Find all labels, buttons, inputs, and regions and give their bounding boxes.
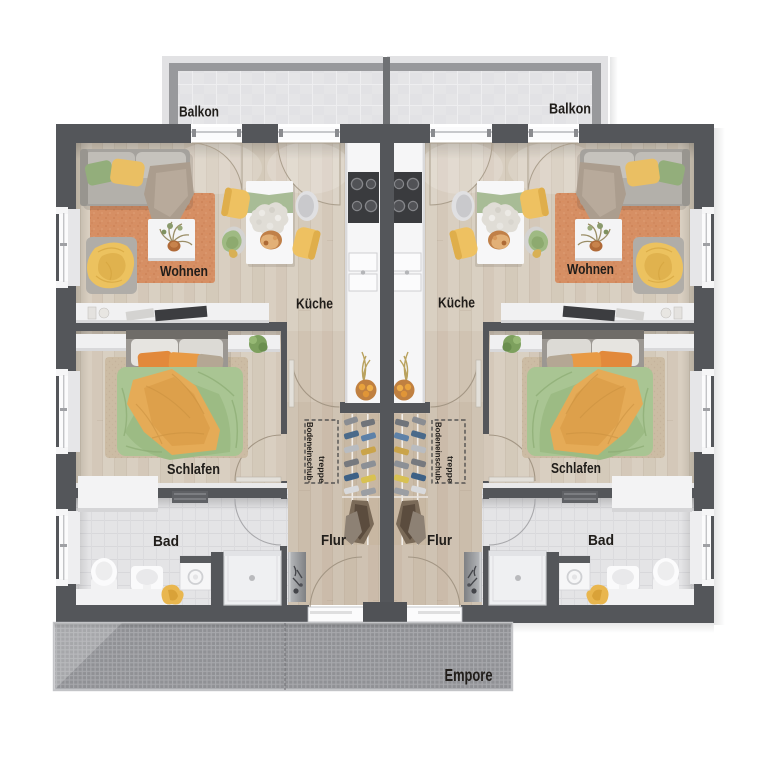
svg-text:Küche: Küche xyxy=(296,296,333,313)
svg-text:Wohnen: Wohnen xyxy=(567,261,614,278)
svg-text:Küche: Küche xyxy=(438,295,475,312)
svg-text:Schlafen: Schlafen xyxy=(167,461,220,478)
svg-text:Schlafen: Schlafen xyxy=(551,460,601,477)
svg-text:Balkon: Balkon xyxy=(179,104,219,121)
svg-text:Flur: Flur xyxy=(427,532,452,549)
svg-text:treppe: treppe xyxy=(317,456,327,483)
svg-text:Flur: Flur xyxy=(321,532,346,549)
svg-text:Bodeneinschub-: Bodeneinschub- xyxy=(434,422,444,483)
svg-text:Bodeneinschub-: Bodeneinschub- xyxy=(305,422,315,483)
svg-text:treppe: treppe xyxy=(446,456,456,483)
svg-text:Wohnen: Wohnen xyxy=(160,263,208,280)
svg-text:Bad: Bad xyxy=(153,533,179,550)
svg-text:Bad: Bad xyxy=(588,532,614,549)
svg-text:Balkon: Balkon xyxy=(549,101,591,118)
svg-text:Empore: Empore xyxy=(445,665,493,685)
